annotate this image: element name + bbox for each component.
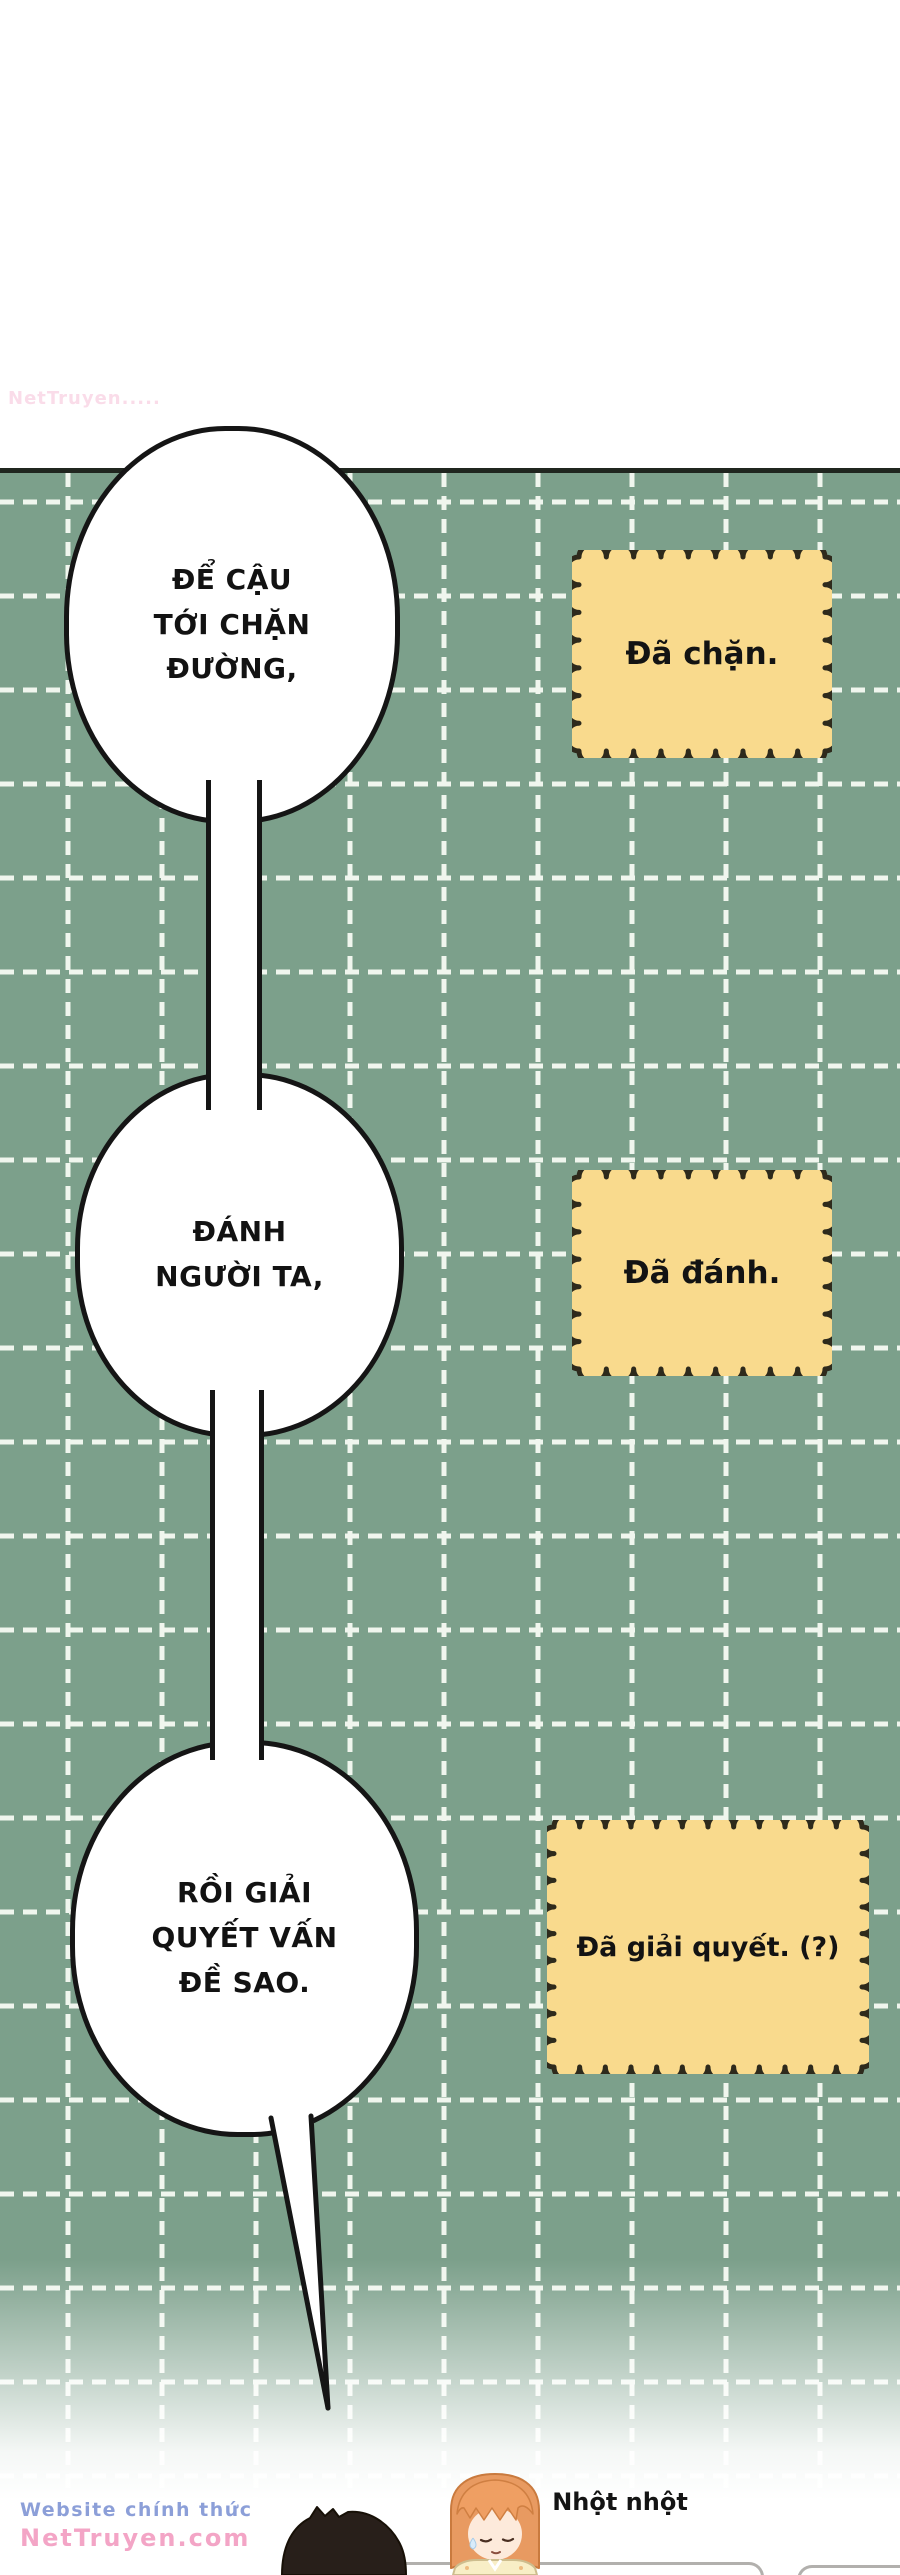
sticker-2-text: Đã đánh. xyxy=(572,1170,832,1376)
sticker-note-2: Đã đánh. xyxy=(572,1170,832,1376)
bubble-3-text: RỒI GIẢI QUYẾT VẤN ĐỀ SAO. xyxy=(70,1740,419,2137)
sticker-1-text: Đã chặn. xyxy=(572,550,832,758)
sticker-3-text: Đã giải quyết. (?) xyxy=(547,1820,869,2074)
couch-segment xyxy=(518,2562,764,2575)
sticker-note-3: Đã giải quyết. (?) xyxy=(547,1820,869,2074)
watermark-line-2: NetTruyen.com xyxy=(20,2525,253,2553)
speech-tail xyxy=(255,2105,345,2425)
comic-page: NetTruyen..... ĐỂ CẬU TỚI CHẶN ĐƯỜNG, ĐÁ… xyxy=(0,0,900,2575)
watermark-line-1: Website chính thức xyxy=(20,2500,253,2522)
bubble-connector-2 xyxy=(210,1390,264,1760)
girl-character-illustration xyxy=(443,2468,547,2575)
faint-watermark: NetTruyen..... xyxy=(8,388,161,409)
sticker-note-1: Đã chặn. xyxy=(572,550,832,758)
boy-character-illustration xyxy=(278,2504,408,2575)
bubble-1-text: ĐỂ CẬU TỚI CHẶN ĐƯỜNG, xyxy=(64,426,400,824)
bubble-2-text: ĐÁNH NGƯỜI TA, xyxy=(75,1072,404,1438)
panel-fade-gradient xyxy=(0,2260,900,2500)
couch-segment xyxy=(797,2565,900,2575)
bubble-connector-1 xyxy=(206,780,262,1110)
site-watermark: Website chính thức NetTruyen.com xyxy=(20,2500,253,2552)
sfx-text: Nhột nhột xyxy=(545,2488,695,2516)
